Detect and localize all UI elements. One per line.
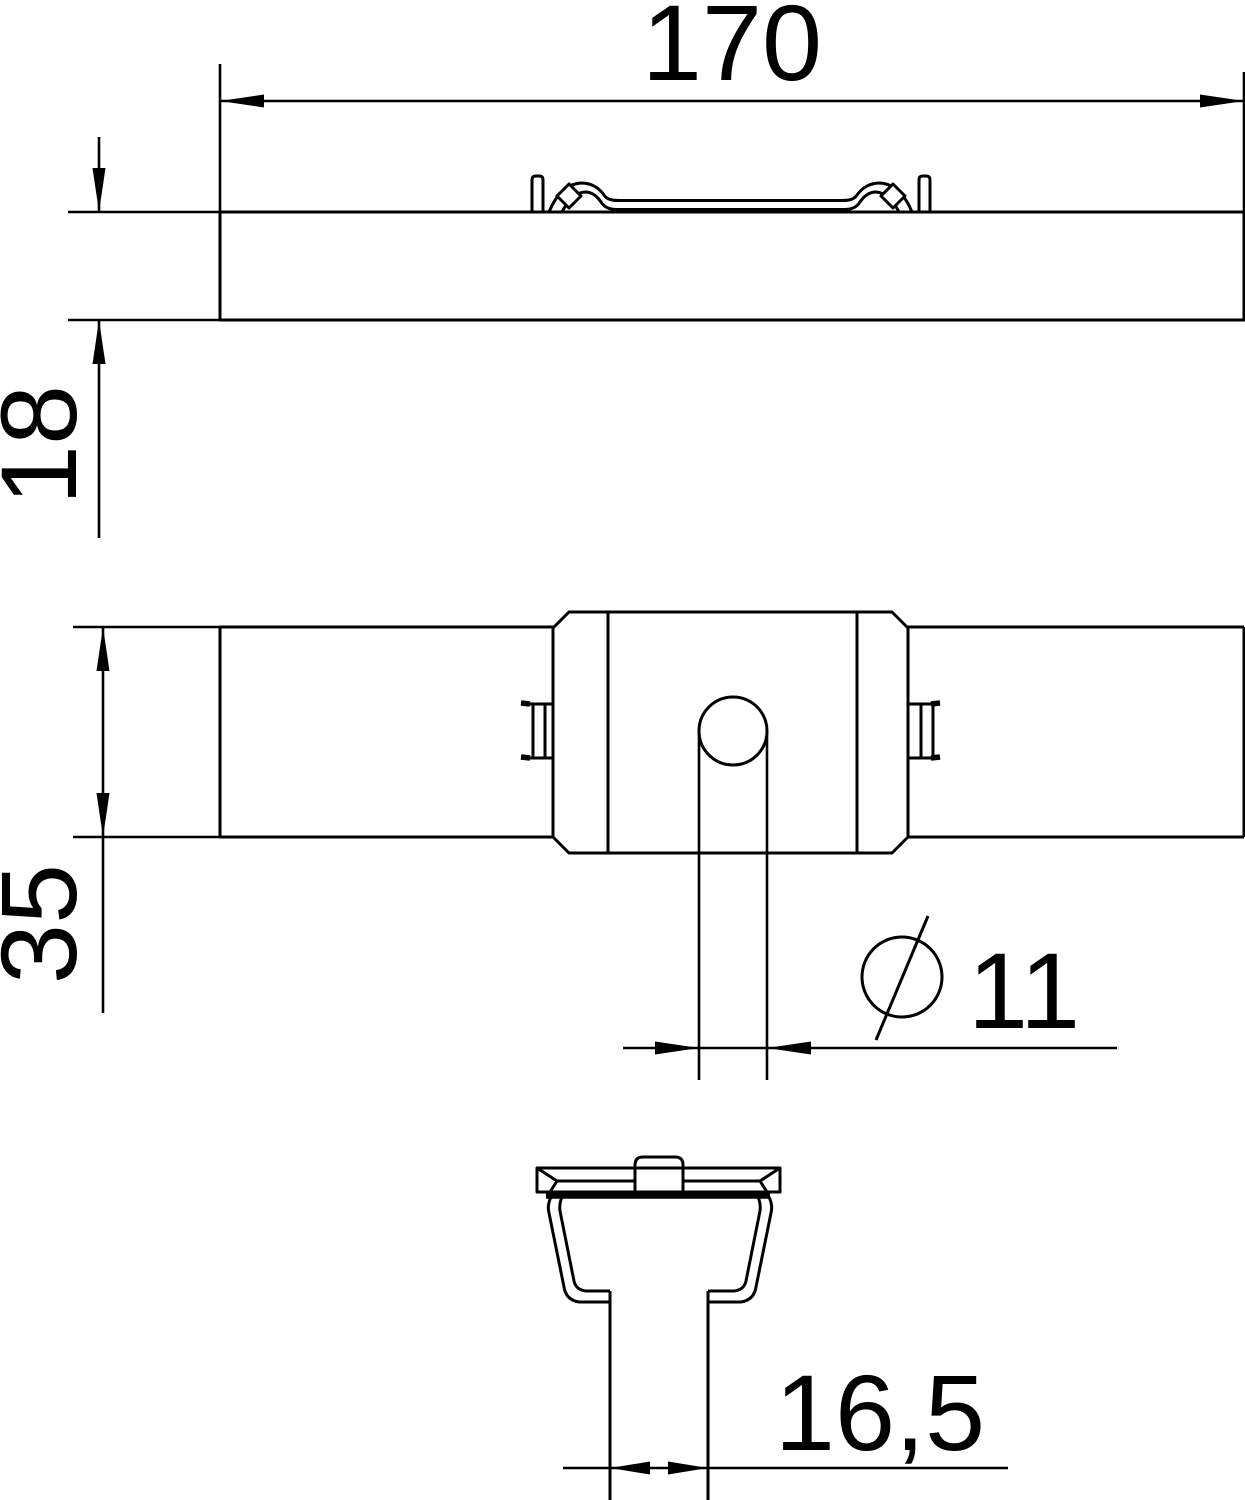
dim-label-35: 35 xyxy=(0,864,99,984)
arrowhead-right xyxy=(668,1462,708,1475)
dimension-length-170: 170 xyxy=(220,0,1244,212)
plate-bevel xyxy=(550,1181,557,1192)
arrowhead-up xyxy=(97,627,110,671)
clip-tick xyxy=(931,757,940,758)
clip-tick xyxy=(521,703,530,704)
arrowhead-down xyxy=(97,793,110,837)
arrowhead-down xyxy=(93,168,106,212)
arrowhead-left xyxy=(220,95,264,108)
elevation-bar-outline xyxy=(220,212,1244,320)
arrowhead-right xyxy=(655,1042,699,1055)
plan-center-block xyxy=(553,612,908,853)
section-view xyxy=(537,1157,780,1500)
plan-view xyxy=(220,612,1244,853)
dim-label-170: 170 xyxy=(642,0,822,103)
dim-label-16-5: 16,5 xyxy=(775,1352,985,1473)
plan-left-clip xyxy=(521,703,553,758)
diameter-symbol xyxy=(862,916,942,1040)
dim-label-18: 18 xyxy=(0,385,99,505)
technical-drawing: 170 18 xyxy=(0,0,1245,1500)
dimension-stem-width-16-5: 16,5 xyxy=(563,1352,1008,1475)
clip-tick xyxy=(931,703,940,704)
hat-outer-left xyxy=(548,1197,610,1302)
dim-label-11: 11 xyxy=(968,930,1080,1051)
dimension-height-18: 18 xyxy=(0,137,220,538)
bridge-left-clip-end xyxy=(557,184,581,208)
diameter-symbol-slash xyxy=(876,916,928,1040)
plate-bevel xyxy=(760,1181,767,1192)
dimension-depth-35: 35 xyxy=(0,627,220,1013)
bridge-outer-contour xyxy=(549,183,912,212)
section-top-tab xyxy=(635,1157,683,1192)
arrowhead-right xyxy=(1200,95,1244,108)
hat-inner-right xyxy=(708,1197,760,1291)
elevation-view xyxy=(220,176,1244,320)
elevation-right-tab xyxy=(919,176,930,212)
clip-tick xyxy=(521,757,530,758)
arrowhead-left xyxy=(767,1042,811,1055)
hat-outer-right xyxy=(708,1197,772,1302)
elevation-left-tab xyxy=(532,176,543,212)
plate-bevel xyxy=(537,1168,557,1181)
arrowhead-left xyxy=(610,1462,650,1475)
drawing-canvas: 170 18 xyxy=(0,0,1245,1500)
plan-right-clip xyxy=(908,703,940,758)
plate-bevel xyxy=(760,1168,780,1181)
bridge-right-clip-end xyxy=(881,184,905,208)
hat-inner-left xyxy=(560,1197,610,1291)
arrowhead-up xyxy=(93,320,106,364)
